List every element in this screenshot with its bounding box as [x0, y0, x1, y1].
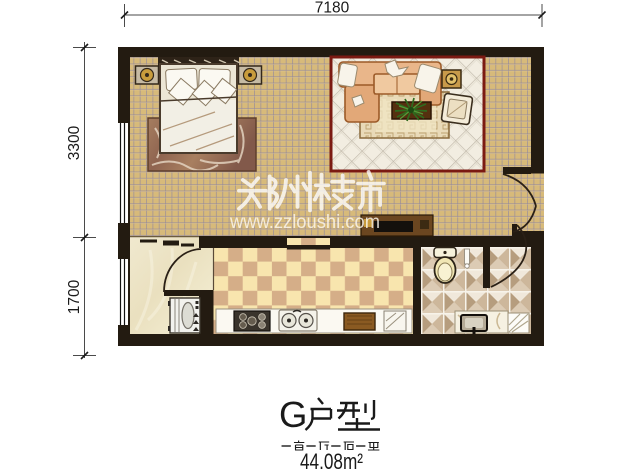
svg-text:44.08m²: 44.08m² — [300, 449, 363, 470]
svg-text:G: G — [279, 394, 307, 435]
svg-text:www.zzloushi.com: www.zzloushi.com — [229, 211, 380, 233]
svg-text:1700: 1700 — [66, 279, 83, 314]
svg-text:3300: 3300 — [66, 125, 83, 160]
svg-text:7180: 7180 — [315, 0, 350, 17]
